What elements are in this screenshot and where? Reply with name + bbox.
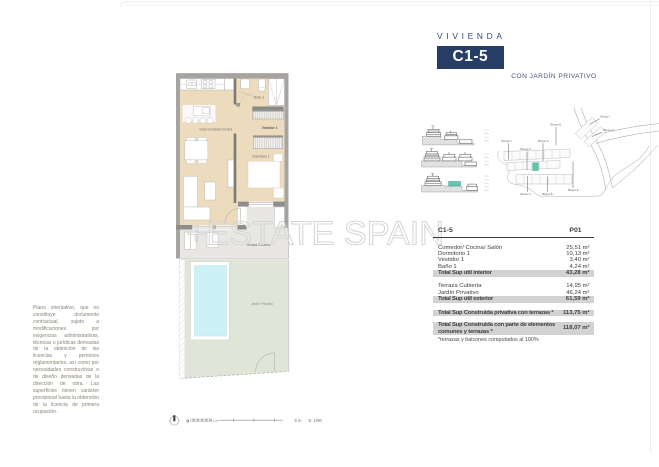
svg-text:Vestidor 1: Vestidor 1 <box>262 126 278 130</box>
svg-text:Dormitorio 1: Dormitorio 1 <box>252 155 270 159</box>
svg-text:Bloque B: Bloque B <box>551 123 562 127</box>
svg-text:0: 0 <box>187 418 190 423</box>
svg-text:5 m: 5 m <box>295 418 302 423</box>
svg-text:E. 1/90: E. 1/90 <box>309 418 323 423</box>
svg-text:Bloque A: Bloque A <box>521 192 532 196</box>
svg-text:Bloque F: Bloque F <box>502 139 513 143</box>
svg-text:Bloque D: Bloque D <box>538 139 549 143</box>
svg-text:Bloque B: Bloque B <box>542 192 553 196</box>
svg-text:Bloque E: Bloque E <box>568 188 579 192</box>
svg-text:+ESTATE SPAIN: +ESTATE SPAIN <box>187 216 445 253</box>
svg-text:Bloque C: Bloque C <box>521 147 532 151</box>
svg-text:Bloque I: Bloque I <box>601 114 611 118</box>
svg-text:Jardín Privativo: Jardín Privativo <box>251 302 273 306</box>
svg-text:1 m: 1 m <box>213 419 219 423</box>
svg-text:Estar-Comedor-Cocina: Estar-Comedor-Cocina <box>200 128 233 132</box>
svg-text:Bloque H: Bloque H <box>604 128 615 132</box>
svg-text:Baño 1: Baño 1 <box>254 95 264 99</box>
